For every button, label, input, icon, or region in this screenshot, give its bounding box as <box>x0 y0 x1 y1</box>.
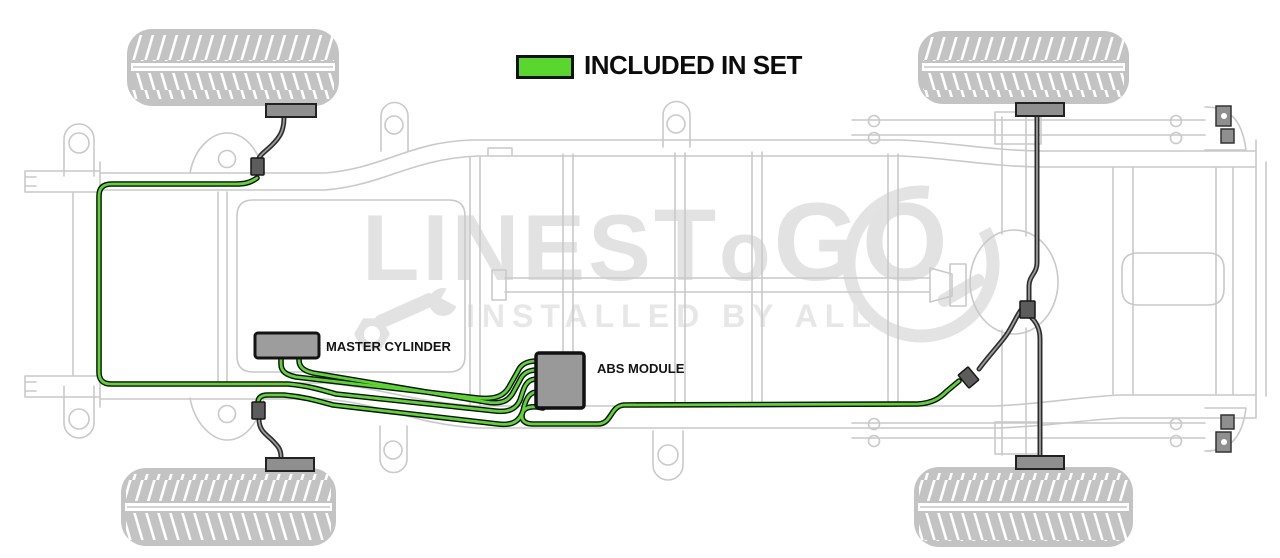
legend-color-swatch <box>516 55 574 79</box>
labels-layer: INCLUDED IN SET MASTER CYLINDER ABS MODU… <box>0 0 1280 558</box>
legend-label: INCLUDED IN SET <box>584 51 802 80</box>
master-cylinder-label: MASTER CYLINDER <box>326 340 451 354</box>
abs-module-label: ABS MODULE <box>597 362 684 376</box>
brake-line-diagram: LINESToGO INSTALLED BY ALL <box>0 0 1280 558</box>
